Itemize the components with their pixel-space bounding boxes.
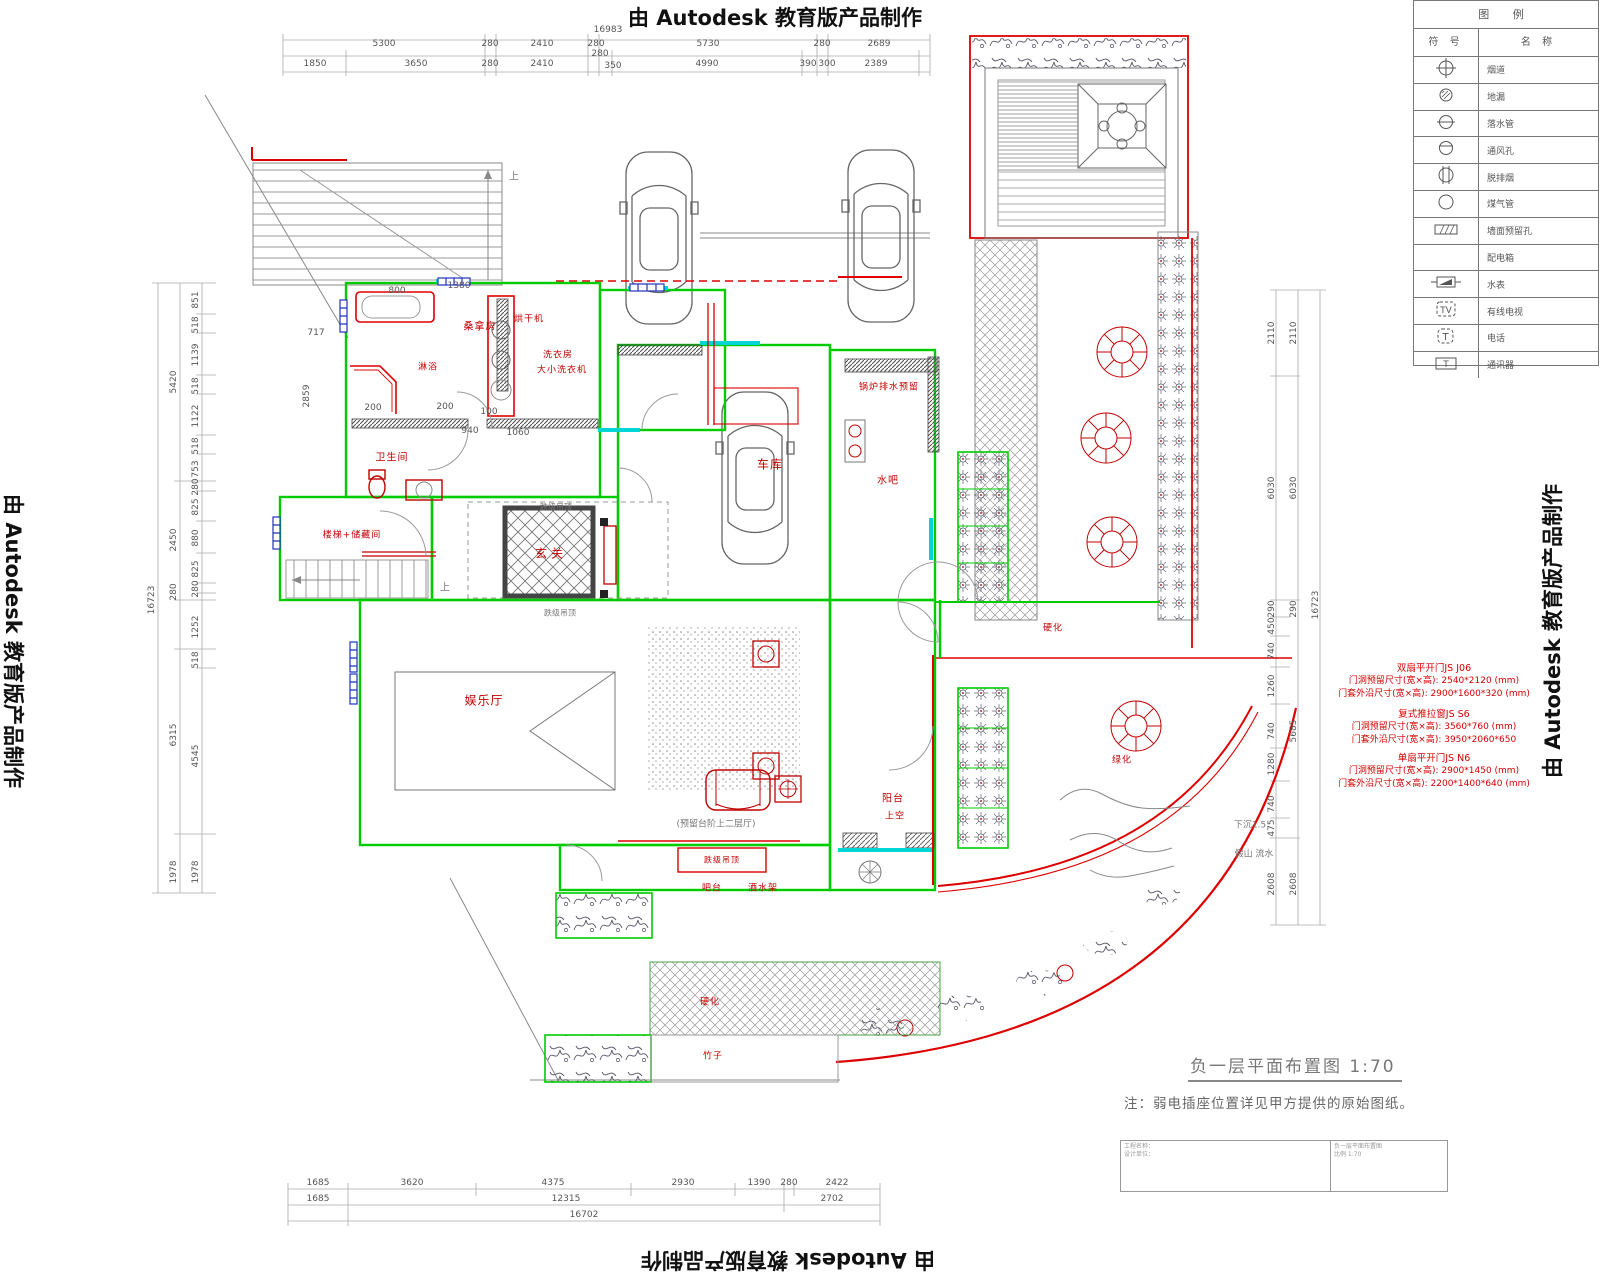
- dim-label: 280: [587, 39, 604, 49]
- dim-label: 1390: [748, 1178, 771, 1188]
- label-mezzanine-note: (预留台阶上二层厅): [676, 817, 755, 830]
- legend-row: 配电箱: [1414, 245, 1598, 272]
- dim-label: 6030: [1267, 477, 1277, 500]
- dim-label: 880: [191, 529, 201, 546]
- room-label-shower: 淋浴: [418, 360, 438, 373]
- dim-label: 1685: [307, 1178, 330, 1188]
- dim-label: 4375: [542, 1178, 565, 1188]
- dim-label: 3650: [405, 59, 428, 69]
- title-block-left-line1: 工程名称：: [1124, 1143, 1327, 1151]
- label-hardscape-2: 硬化: [700, 995, 720, 1008]
- dim-label: 825: [191, 560, 201, 577]
- dim-label: 717: [307, 328, 324, 338]
- legend-title: 图 例: [1414, 1, 1598, 29]
- legend-row: 墙面预留孔: [1414, 218, 1598, 245]
- dim-label: 12315: [552, 1194, 581, 1204]
- exhaust-icon: [1435, 164, 1457, 190]
- dim-label: 16983: [594, 25, 623, 35]
- dim-label: 2410: [531, 39, 554, 49]
- intercom-icon: T: [1433, 352, 1459, 378]
- dim-label: 1850: [304, 59, 327, 69]
- legend-table: 图 例 符 号 名 称 烟道 地漏 落水管 通风孔 脱排烟 煤气管: [1413, 0, 1599, 366]
- foyer-tile: [468, 502, 668, 598]
- water-meter-icon: [1431, 271, 1461, 297]
- legend-row: TV 有线电视: [1414, 298, 1598, 325]
- legend-row: 烟道: [1414, 57, 1598, 84]
- dim-label: 940: [461, 426, 478, 436]
- power-box-icon: [1435, 244, 1457, 270]
- legend-row: 煤气管: [1414, 191, 1598, 218]
- dim-label: 350: [604, 61, 621, 71]
- dim-label: 2410: [531, 59, 554, 69]
- dim-label: 2450: [169, 529, 179, 552]
- label-bamboo: 竹子: [703, 1049, 723, 1062]
- watermark-bottom: 由 Autodesk 教育版产品制作: [608, 1246, 968, 1276]
- label-stairs-up-1: 上: [509, 168, 519, 183]
- dim-label: 5730: [697, 39, 720, 49]
- svg-text:T: T: [1441, 332, 1449, 343]
- label-rockery-note: 假山 流水: [1235, 847, 1274, 860]
- dim-label: 200: [364, 403, 381, 413]
- legend-col-symbol: 符 号: [1414, 29, 1479, 56]
- room-label-sauna: 桑拿房: [464, 318, 497, 333]
- legend-row: 脱排烟: [1414, 164, 1598, 191]
- dim-label: 475: [1267, 819, 1277, 836]
- dim-label: 450: [1267, 617, 1277, 634]
- vent-hole-icon: [1435, 137, 1457, 163]
- dim-label: 825: [191, 498, 201, 515]
- dim-label: 280: [591, 49, 608, 59]
- dim-label: 800: [388, 286, 405, 296]
- label-ceiling-bottom: 跌级吊顶: [544, 608, 576, 619]
- legend-row: T 通讯器: [1414, 352, 1598, 378]
- dim-label: 16723: [147, 586, 157, 615]
- label-bar: 吧台: [702, 881, 722, 894]
- dim-label: 1685: [307, 1194, 330, 1204]
- phone-icon: T: [1434, 325, 1458, 351]
- room-label-washers: 大小洗衣机: [537, 363, 587, 376]
- dim-label: 6030: [1289, 477, 1299, 500]
- dim-label: 740: [1267, 795, 1277, 812]
- label-wine-rack: 酒水架: [748, 881, 778, 894]
- dim-label: 5420: [169, 371, 179, 394]
- dim-label: 3620: [401, 1178, 424, 1188]
- dim-label: 280: [481, 39, 498, 49]
- car-top-left: [620, 152, 698, 324]
- dim-label: 1252: [191, 616, 201, 639]
- room-label-stairs-storage: 楼梯+储藏间: [323, 528, 382, 541]
- room-label-dryer: 烘干机: [514, 312, 544, 325]
- dim-label: 1060: [507, 428, 530, 438]
- dim-label: 6315: [169, 724, 179, 747]
- dim-label: 280: [813, 39, 830, 49]
- dim-label: 1978: [191, 861, 201, 884]
- watermark-left: 由 Autodesk 教育版产品制作: [0, 461, 29, 821]
- svg-text:T: T: [1442, 360, 1449, 370]
- label-ceiling-top: 跌级吊顶: [540, 502, 572, 513]
- dim-label: 1280: [1267, 753, 1277, 776]
- dim-label: 518: [191, 437, 201, 454]
- room-label-water-bar: 水吧: [877, 472, 899, 487]
- dim-label: 518: [191, 316, 201, 333]
- label-greening: 绿化: [1112, 753, 1132, 766]
- bottom-yard: [545, 893, 940, 1082]
- room-label-rec-room: 娱乐厅: [464, 692, 503, 709]
- label-hardscape-1: 硬化: [1043, 621, 1063, 634]
- legend-row: 落水管: [1414, 111, 1598, 138]
- dim-label: 100: [480, 407, 497, 417]
- dim-label: 16702: [570, 1210, 599, 1220]
- dim-label: 2608: [1289, 873, 1299, 896]
- legend-row: 地漏: [1414, 84, 1598, 111]
- pergola: [970, 36, 1188, 238]
- upper-staircase: [253, 163, 502, 285]
- dim-label: 1122: [191, 405, 201, 428]
- title-block: 工程名称： 设计单位： 负一层平面布置图 比例 1:70: [1120, 1140, 1448, 1192]
- legend-row: 通风孔: [1414, 137, 1598, 164]
- dim-label: 280: [780, 1178, 797, 1188]
- dim-label: 280: [481, 59, 498, 69]
- wall-hatch: [352, 299, 939, 848]
- dim-label: 851: [191, 291, 201, 308]
- drawing-title: 负一层平面布置图 1:70: [1188, 1052, 1402, 1082]
- floor-drain-icon: [1435, 84, 1457, 110]
- room-label-garage: 车库: [757, 456, 783, 473]
- title-block-right-line1: 负一层平面布置图: [1334, 1143, 1444, 1151]
- dim-label: 290: [1289, 600, 1299, 617]
- dim-label: 4990: [696, 59, 719, 69]
- door-spec-block-1: 双扇平开门JS J06 门洞预留尺寸(宽×高): 2540*2120 (mm) …: [1310, 662, 1558, 701]
- catv-icon: TV: [1434, 298, 1458, 324]
- dim-label: 740: [1267, 642, 1277, 659]
- label-sunken-note: 下沉1.5: [1234, 818, 1266, 831]
- car-top-right: [842, 150, 920, 322]
- dim-label: 5685: [1289, 720, 1299, 743]
- dim-label: 2859: [302, 385, 312, 408]
- dim-label: 200: [436, 402, 453, 412]
- dim-label: 740: [1267, 722, 1277, 739]
- dim-label: 518: [191, 377, 201, 394]
- dim-label: 2389: [865, 59, 888, 69]
- legend-col-name: 名 称: [1479, 29, 1598, 56]
- dim-label: 1139: [191, 344, 201, 367]
- dim-label: 280: [191, 478, 201, 495]
- blue-window-marks: [273, 278, 664, 704]
- dim-label: 290: [1267, 600, 1277, 617]
- legend-row: 水表: [1414, 271, 1598, 298]
- room-label-laundry: 洗衣房: [543, 348, 573, 361]
- dim-label: 2689: [868, 39, 891, 49]
- title-block-right-line2: 比例 1:70: [1334, 1151, 1444, 1159]
- room-label-balcony: 阳台: [882, 790, 904, 805]
- gas-pipe-icon: [1435, 191, 1457, 217]
- dim-label: 2930: [672, 1178, 695, 1188]
- flue-icon: [1435, 57, 1457, 83]
- watermark-top: 由 Autodesk 教育版产品制作: [595, 2, 955, 32]
- dim-label: 2422: [826, 1178, 849, 1188]
- dim-label: 280: [169, 583, 179, 600]
- dim-label: 5300: [373, 39, 396, 49]
- garage-car: [716, 392, 794, 564]
- label-boiler-drain: 锅炉排水预留: [859, 380, 919, 393]
- dim-label: 16723: [1311, 591, 1321, 620]
- dim-label: 518: [191, 651, 201, 668]
- dim-label: 2702: [821, 1194, 844, 1204]
- drawing-note: 注：弱电插座位置详见甲方提供的原始图纸。: [1124, 1092, 1414, 1112]
- title-block-left-line2: 设计单位：: [1124, 1151, 1327, 1159]
- svg-text:TV: TV: [1439, 306, 1452, 316]
- door-spec-block-2: 复式推拉窗JS S6 门洞预留尺寸(宽×高): 3560*760 (mm) 门套…: [1310, 708, 1558, 747]
- cad-floor-plan-page: 由 Autodesk 教育版产品制作 由 Autodesk 教育版产品制作 由 …: [0, 0, 1600, 1280]
- label-dropped-ceiling: 跌级吊顶: [704, 855, 740, 866]
- room-label-foyer: 玄关: [535, 545, 567, 562]
- room-label-bathroom: 卫生间: [376, 449, 409, 464]
- downpipe-icon: [1435, 111, 1457, 137]
- door-spec-block-3: 单扇平开门JS N6 门洞预留尺寸(宽×高): 2900*1450 (mm) 门…: [1310, 752, 1558, 791]
- dim-label: 4545: [191, 745, 201, 768]
- lower-staircase: [286, 511, 436, 598]
- dim-label: 2110: [1267, 322, 1277, 345]
- dim-label: 300: [818, 59, 835, 69]
- label-balcony-void: 上空: [885, 809, 905, 822]
- wall-hole-icon: [1433, 218, 1459, 244]
- floor-plan-drawing: [0, 0, 1600, 1280]
- dim-label: 390: [799, 59, 816, 69]
- dim-label: 2608: [1267, 873, 1277, 896]
- dim-label: 1978: [169, 861, 179, 884]
- label-stairs-up-2: 上: [440, 579, 450, 594]
- dim-label: 1260: [1267, 675, 1277, 698]
- dim-label: 2110: [1289, 322, 1299, 345]
- dim-label: 280: [191, 580, 201, 597]
- dim-label: 753: [191, 460, 201, 477]
- legend-row: T 电话: [1414, 325, 1598, 352]
- dim-label: 1380: [448, 281, 471, 291]
